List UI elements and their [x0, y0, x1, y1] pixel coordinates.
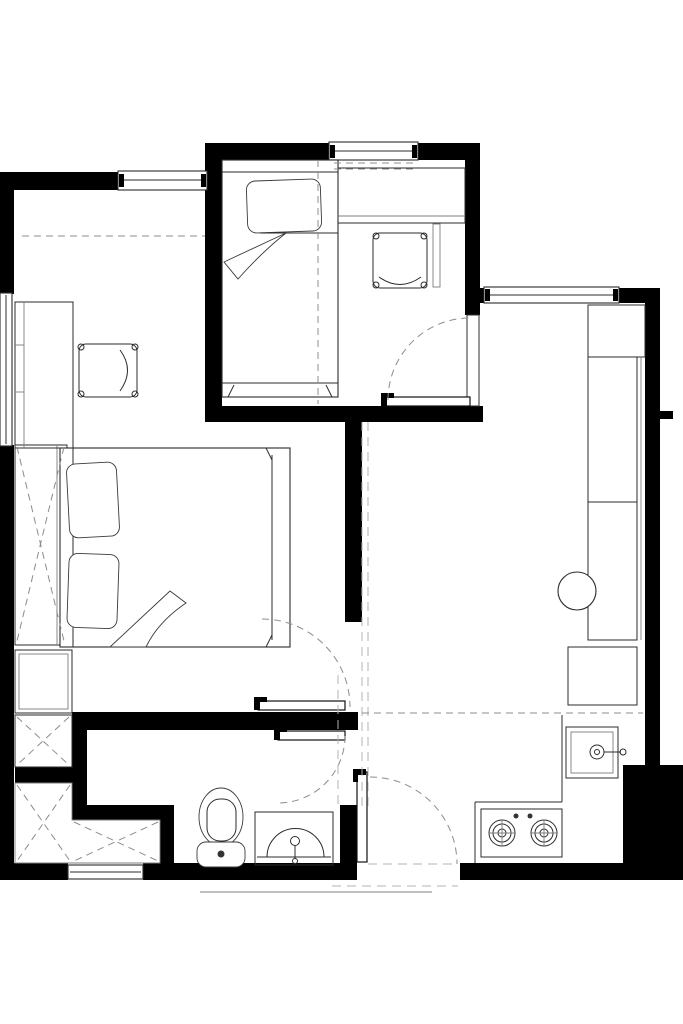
door-arc-bathroom [278, 736, 345, 803]
desk-bedroom2 [338, 168, 465, 223]
door-leaf-bedroom1 [258, 701, 345, 710]
chair-cushion-bedroom2 [373, 233, 427, 288]
wall-bottom-right-block [623, 765, 683, 865]
toilet-flush-button [218, 851, 225, 858]
wall-bedroom2-top-left [205, 143, 331, 160]
vanity-faucet-base [291, 837, 300, 846]
door-hinge-bedroom2-a [381, 393, 394, 398]
pillow-bedroom1-a [66, 462, 120, 539]
wall-bathroom-top [72, 712, 358, 730]
cabinet-bedroom1-inner [19, 654, 68, 709]
door-hinge-bedroom1-a [254, 697, 267, 702]
kitchen-faucet-base [590, 745, 604, 759]
window-top-left-cap-b [201, 174, 206, 187]
wall-bottom-left-b [143, 863, 345, 880]
window-top-left-cap-a [119, 174, 124, 187]
wall-top-right-corner [617, 288, 660, 303]
wall-bedroom2-bottom [205, 406, 483, 422]
door-arc-bedroom2 [388, 318, 470, 400]
wall-bottom-left-a [0, 863, 68, 880]
door-hinge-bedroom2-b [381, 398, 387, 406]
door-arc-entry [370, 777, 457, 864]
door-hinge-bathroom-a [274, 727, 287, 732]
vanity-faucet-handle [293, 859, 298, 864]
chair1-knob-b [132, 344, 138, 350]
cabinet-living-low [588, 502, 637, 640]
wall-top-left [0, 172, 122, 190]
wall-left-upper [0, 172, 14, 294]
door-hinge-bedroom1-b [254, 702, 260, 710]
floor-plan-svg [0, 0, 683, 1024]
wall-bedroom1-living [345, 422, 362, 622]
pillow-bedroom2 [246, 179, 322, 234]
chair2-back-arc [379, 277, 421, 285]
stove-knob-a [514, 814, 519, 819]
window-bedroom2-cap-b [412, 145, 417, 158]
utility-area-outline [15, 783, 160, 863]
chair1-knob-a [78, 344, 84, 350]
stove-knob-b [528, 814, 533, 819]
wall-bathroom-left [72, 730, 87, 806]
door-leaf-bedroom2 [385, 397, 470, 406]
wall-above-utility [15, 767, 72, 783]
window-living-cap-a [485, 289, 490, 301]
chair1-knob-d [132, 391, 138, 397]
window-bedroom2-cap-a [330, 145, 335, 158]
wall-right [645, 303, 660, 767]
wall-utility-right [160, 805, 174, 863]
cabinet-bedroom1 [15, 650, 72, 713]
floor-plan-page [0, 0, 683, 1024]
wall-bottom-right [460, 863, 683, 880]
wall-bedroom2-left [205, 143, 222, 415]
door-hinge-entry-a [353, 769, 358, 782]
stool-circle [558, 572, 596, 610]
chair1-knob-c [78, 391, 84, 397]
chair-cushion-bedroom1 [79, 344, 137, 397]
pillow-bedroom1-b [67, 553, 120, 629]
door-hinge-bathroom-b [274, 732, 280, 740]
wall-utility-top [72, 805, 160, 820]
wall-left-lower [0, 445, 14, 880]
door-leaf-bathroom [278, 731, 345, 740]
kitchen-faucet-dot [595, 750, 600, 755]
desk-side-panel [433, 224, 440, 287]
wall-bedroom2-right [465, 143, 480, 315]
cabinet-kitchen-square [568, 647, 637, 705]
chair1-back-arc [120, 350, 128, 391]
window-living-cap-b [613, 289, 618, 301]
doorway-jamb-bedroom2 [467, 315, 479, 406]
cabinet-living-top [588, 305, 645, 357]
wall-bracket-right [660, 411, 673, 419]
cabinet-living-mid [588, 357, 637, 502]
